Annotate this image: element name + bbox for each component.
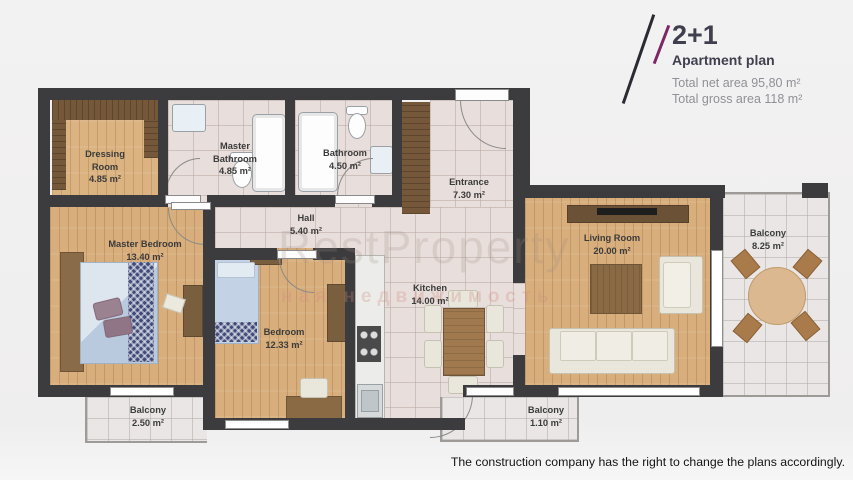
master-bedroom-label: Master Bedroom 13.40 m² (90, 238, 200, 263)
dining-chair (486, 305, 504, 333)
plan-subtitle: Apartment plan (672, 52, 775, 68)
room-name: Master Bathroom (202, 140, 268, 165)
dressing-room-label: Dressing Room 4.85 m² (74, 148, 136, 186)
plan-type-title: 2+1 (672, 20, 718, 51)
bedroom-wardrobe (327, 284, 347, 342)
purple-slash-decoration (653, 25, 670, 64)
room-area: 2.50 m² (112, 417, 184, 430)
room-area: 4.50 m² (309, 160, 381, 173)
master-dresser (183, 285, 203, 337)
desk-chair (300, 378, 328, 398)
room-area: 8.25 m² (732, 240, 804, 253)
wall-segment (50, 195, 165, 207)
room-area: 14.00 m² (394, 295, 466, 308)
coffee-table (590, 264, 642, 314)
wall-segment (215, 248, 277, 260)
room-name: Bathroom (309, 147, 381, 160)
balcony-bottom-middle-label: Balcony 1.10 m² (510, 404, 582, 429)
black-slash-decoration (622, 14, 655, 104)
wall-segment (313, 248, 348, 260)
wall-segment (802, 183, 828, 198)
room-name: Dressing Room (74, 148, 136, 173)
dining-table (443, 308, 485, 376)
entrance-label: Entrance 7.30 m² (433, 176, 505, 201)
balcony-right-label: Balcony 8.25 m² (732, 227, 804, 252)
gross-area-text: Total gross area 118 m² (672, 92, 802, 106)
wall-segment (513, 185, 725, 198)
kitchen-living-opening-floor (513, 283, 525, 355)
dining-chair (424, 340, 442, 368)
wall-segment (207, 195, 335, 207)
room-name: Hall (270, 212, 342, 225)
master-bathroom-label: Master Bathroom 4.85 m² (202, 140, 268, 178)
tv (597, 208, 657, 215)
sofa-cushion (596, 331, 632, 361)
dining-chair (486, 340, 504, 368)
net-area-text: Total net area 95,80 m² (672, 76, 801, 90)
balcony-bottom-left-label: Balcony 2.50 m² (112, 404, 184, 429)
living-room-window (558, 387, 700, 396)
room-name: Kitchen (394, 282, 466, 295)
wall-segment (38, 88, 50, 397)
room-name: Balcony (112, 404, 184, 417)
bathroom-toilet (348, 113, 366, 139)
wall-segment (372, 195, 402, 207)
room-area: 7.30 m² (433, 189, 505, 202)
dressing-wardrobe-right (144, 120, 158, 158)
kitchen-label: Kitchen 14.00 m² (394, 282, 466, 307)
disclaimer-text: The construction company has the right t… (445, 455, 845, 469)
room-area: 12.33 m² (248, 339, 320, 352)
room-area: 4.85 m² (74, 173, 136, 186)
bedroom-label: Bedroom 12.33 m² (248, 326, 320, 351)
bathroom-door-sill (335, 195, 375, 204)
master-bed-runner (128, 262, 154, 362)
single-bed-pillow (217, 262, 255, 278)
desk (286, 396, 342, 420)
master-bath-sink (172, 104, 206, 132)
room-name: Balcony (732, 227, 804, 240)
master-bedroom-door-sill (171, 202, 211, 210)
wall-segment (203, 207, 215, 430)
wall-segment (392, 100, 402, 207)
wall-segment (355, 418, 465, 430)
wall-segment (513, 88, 530, 198)
bedroom-door-sill (277, 250, 317, 259)
dressing-wardrobe-left (52, 120, 66, 190)
entrance-door-sill (455, 89, 509, 101)
entrance-closet (402, 102, 430, 214)
room-area: 5.40 m² (270, 225, 342, 238)
room-name: Entrance (433, 176, 505, 189)
kitchen-sink-basin (361, 390, 379, 412)
dressing-wardrobe-top (52, 100, 158, 120)
floor-plan-page: 2+1 Apartment plan Total net area 95,80 … (0, 0, 853, 480)
room-area: 4.85 m² (202, 165, 268, 178)
room-area: 1.10 m² (510, 417, 582, 430)
living-room-label: Living Room 20.00 m² (565, 232, 659, 257)
master-bedroom-window (110, 387, 174, 396)
room-name: Living Room (565, 232, 659, 245)
wall-segment (285, 100, 295, 195)
room-name: Bedroom (248, 326, 320, 339)
bathroom-label: Bathroom 4.50 m² (309, 147, 381, 172)
hall-label: Hall 5.40 m² (270, 212, 342, 237)
wall-segment (38, 88, 518, 100)
sofa-cushion (632, 331, 668, 361)
room-name: Balcony (510, 404, 582, 417)
wall-segment (158, 100, 168, 207)
balcony-sliding-door (711, 250, 723, 347)
balcony-table (748, 267, 806, 325)
balcony-door-sill (466, 387, 514, 396)
room-area: 20.00 m² (565, 245, 659, 258)
bedroom-window (225, 420, 289, 429)
armchair-cushion (663, 262, 691, 308)
wall-segment (513, 198, 525, 283)
room-area: 13.40 m² (90, 251, 200, 264)
room-name: Master Bedroom (90, 238, 200, 251)
wall-segment (345, 248, 355, 430)
kitchen-stove (357, 326, 381, 362)
sofa-cushion (560, 331, 596, 361)
dining-chair (424, 305, 442, 333)
